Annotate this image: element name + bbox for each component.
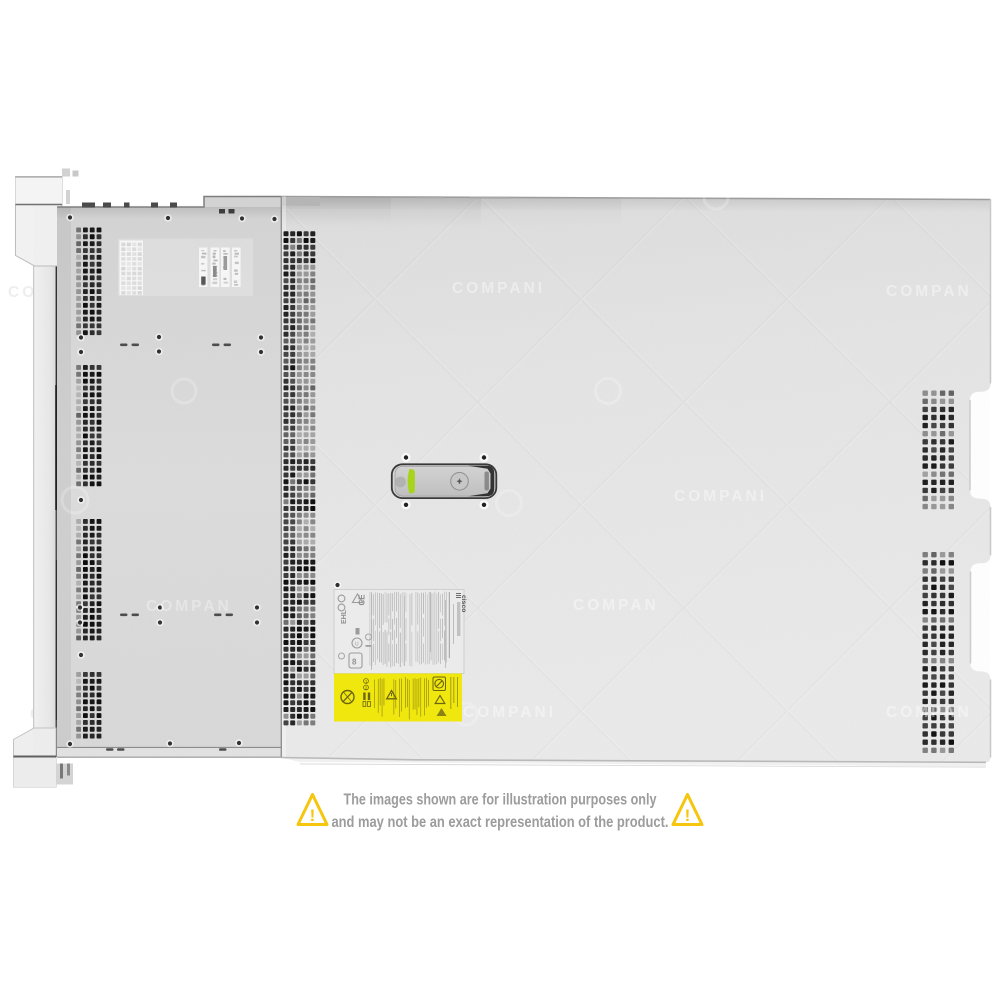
svg-text:COMPAN: COMPAN [886,283,972,300]
svg-text:EHL: EHL [341,609,348,624]
svg-text:2: 2 [365,686,368,691]
svg-text:!: ! [685,806,691,825]
svg-text:COMPANI: COMPANI [674,488,767,505]
svg-text:COMPANI: COMPANI [452,280,545,297]
svg-text:1: 1 [365,679,368,684]
svg-text:The images shown are for illus: The images shown are for illustration pu… [344,792,657,809]
svg-text:cisco: cisco [460,595,467,612]
svg-text:CE: CE [358,594,367,606]
svg-text:COMPAN: COMPAN [146,598,232,615]
svg-text:!: ! [310,806,316,825]
svg-text:COMPAN: COMPAN [886,704,972,721]
svg-text:U: U [355,642,359,648]
svg-text:and may not be an exact repres: and may not be an exact representation o… [332,814,669,831]
svg-text:COMPAN: COMPAN [573,597,659,614]
svg-text:8: 8 [352,658,357,667]
